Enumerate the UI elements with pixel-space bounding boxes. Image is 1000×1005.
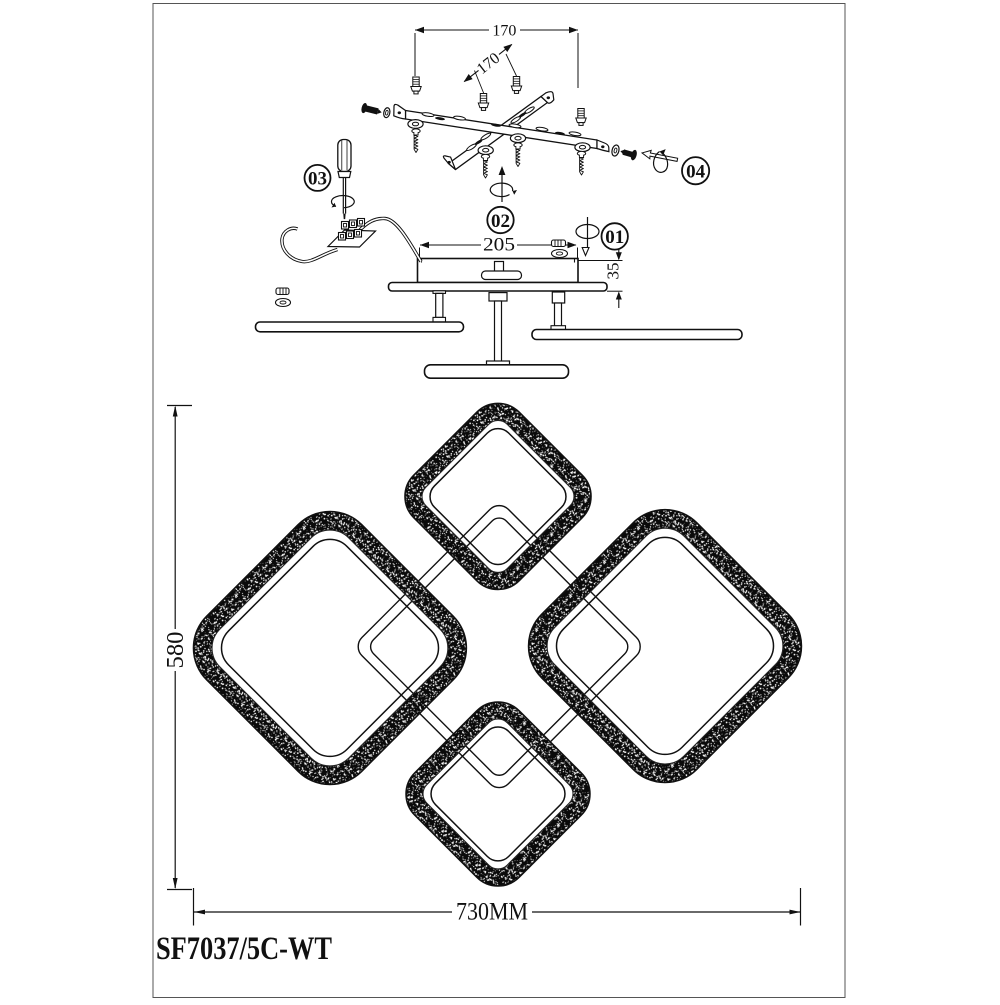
svg-text:02: 02 [491,211,510,232]
svg-text:580: 580 [163,632,189,669]
svg-text:170: 170 [492,23,516,40]
svg-text:35: 35 [604,263,623,280]
svg-text:01: 01 [605,227,624,248]
svg-text:SF7037/5C-WT: SF7037/5C-WT [156,930,332,966]
svg-text:04: 04 [686,162,706,183]
svg-text:03: 03 [308,169,327,190]
svg-text:205: 205 [483,235,515,256]
svg-text:730MM: 730MM [456,899,528,926]
